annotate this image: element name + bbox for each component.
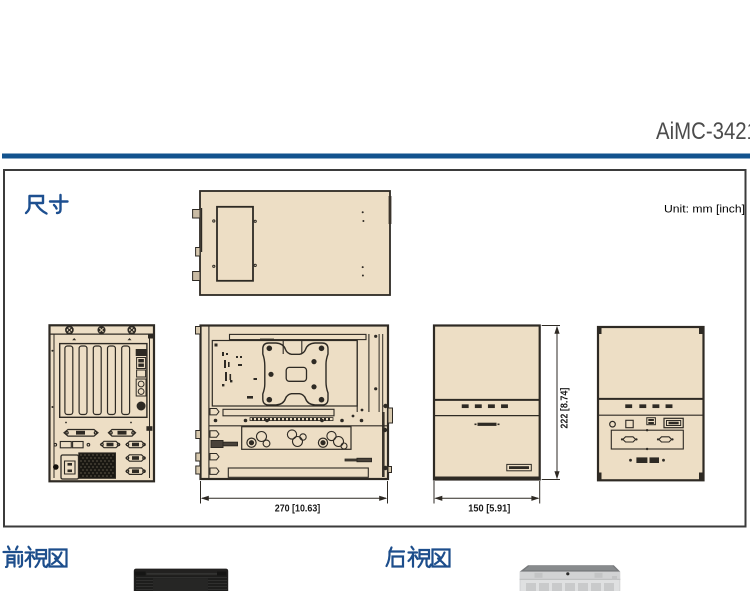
svg-text:270 [10.63]: 270 [10.63]	[275, 503, 321, 515]
svg-text:150 [5.91]: 150 [5.91]	[468, 503, 510, 515]
svg-text:Unit: mm [inch]: Unit: mm [inch]	[664, 204, 745, 216]
svg-text:222 [8.74]: 222 [8.74]	[559, 388, 571, 429]
svg-text:AiMC-3421: AiMC-3421	[656, 118, 750, 145]
